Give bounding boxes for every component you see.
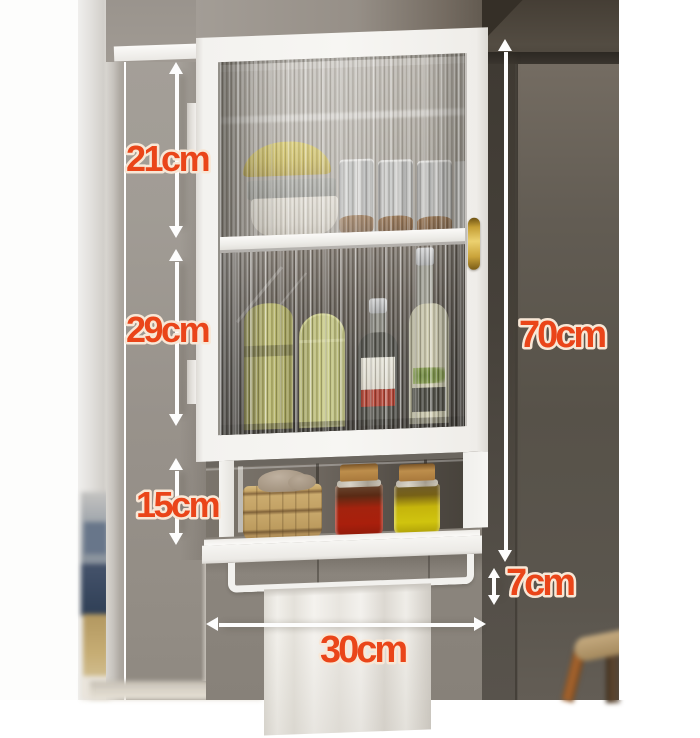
svg-text:30cm: 30cm [320, 629, 406, 671]
svg-text:70cm: 70cm [519, 314, 605, 356]
svg-text:21cm: 21cm [126, 138, 209, 179]
svg-text:29cm: 29cm [126, 309, 209, 350]
svg-text:7cm: 7cm [506, 562, 574, 604]
svg-text:15cm: 15cm [136, 484, 219, 525]
